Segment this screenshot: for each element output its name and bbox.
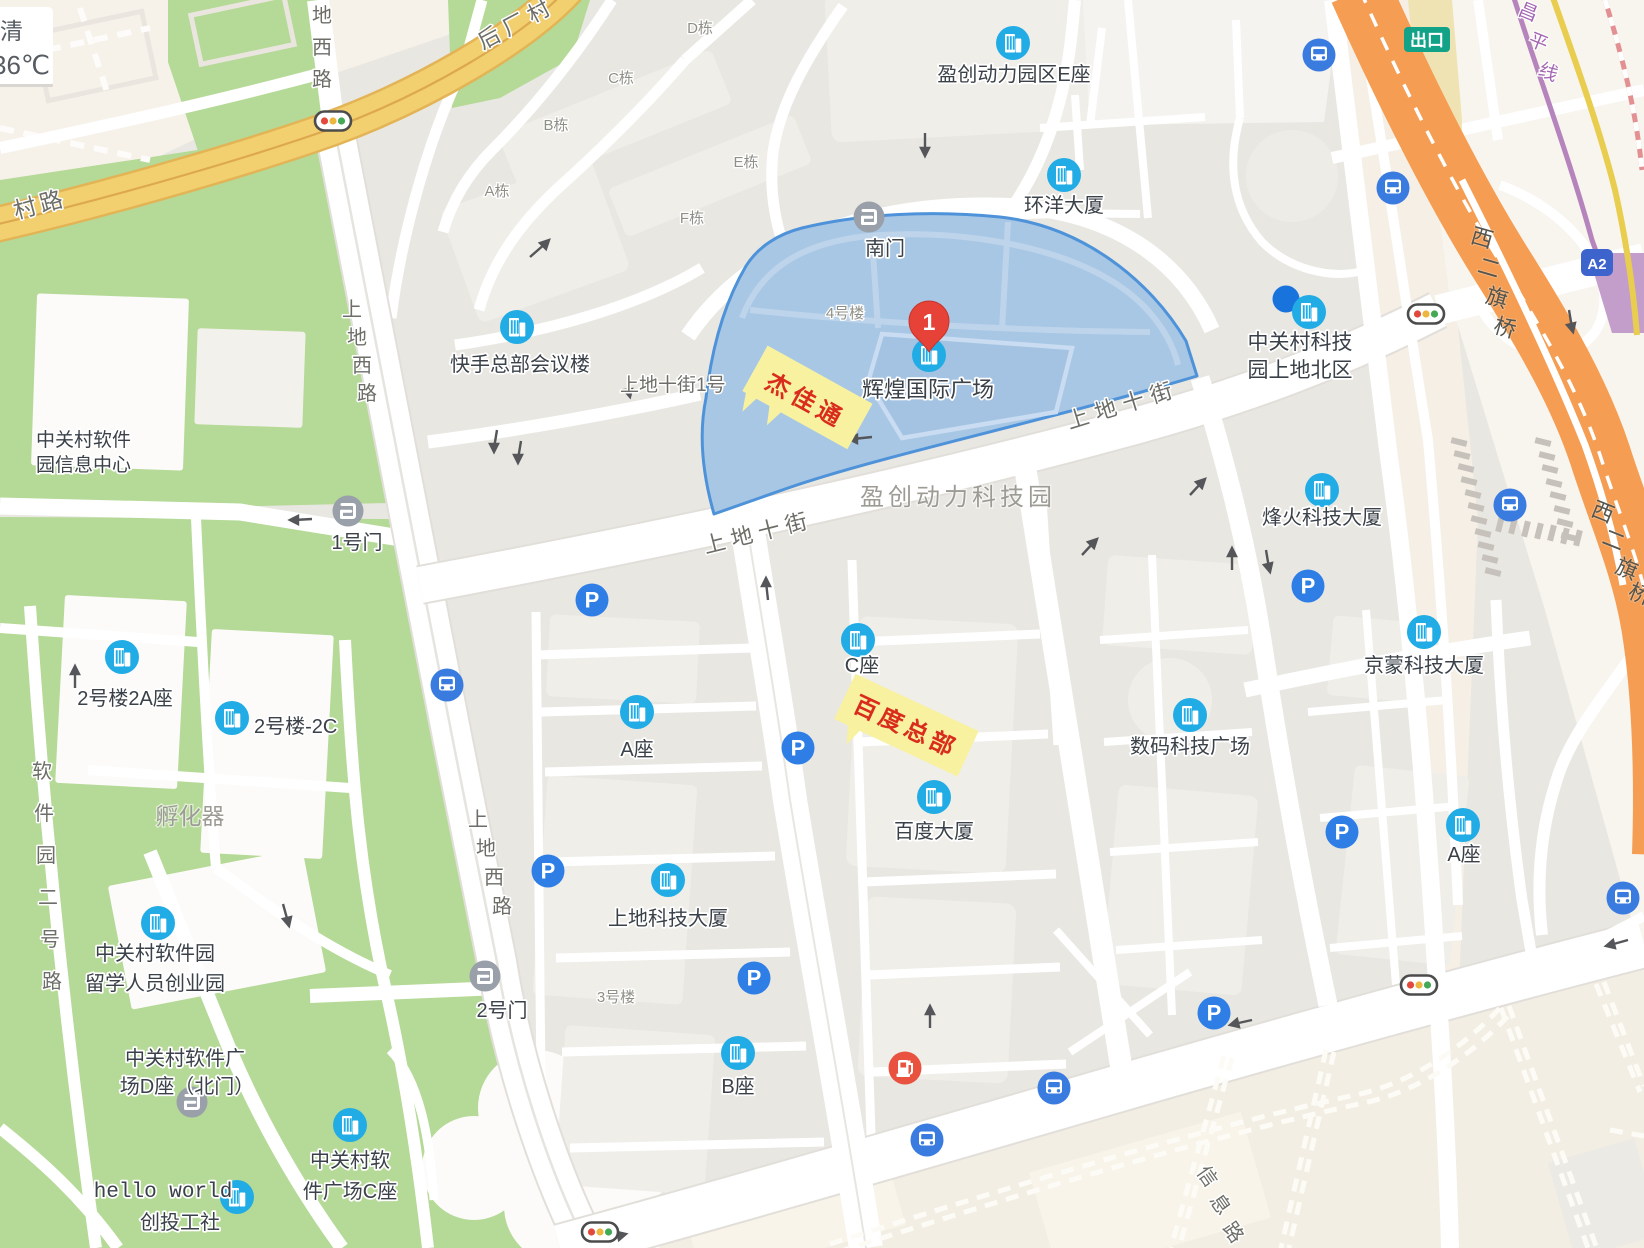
svg-text:D栋: D栋 [687,19,713,37]
svg-text:上: 上 [468,808,488,831]
svg-text:留学人员创业园: 留学人员创业园 [85,972,225,995]
svg-text:百度大厦: 百度大厦 [894,820,974,843]
svg-text:E栋: E栋 [733,153,758,171]
svg-text:西: 西 [312,37,332,59]
svg-text:南门: 南门 [865,237,905,260]
svg-text:孵化器: 孵化器 [156,803,225,829]
svg-text:C座: C座 [845,654,879,677]
svg-text:2号楼2A座: 2号楼2A座 [77,687,173,710]
svg-text:园信息中心: 园信息中心 [36,454,131,476]
svg-text:西: 西 [484,867,504,889]
svg-text:场D座（北门）: 场D座（北门） [120,1075,254,1098]
svg-text:A座: A座 [620,738,653,761]
svg-text:烽火科技大厦: 烽火科技大厦 [1262,506,1382,529]
svg-text:中关村科技: 中关村科技 [1248,331,1353,354]
svg-text:盈创动力科技园: 盈创动力科技园 [860,484,1056,511]
svg-text:辉煌国际广场: 辉煌国际广场 [862,377,994,402]
svg-text:环洋大厦: 环洋大厦 [1024,194,1104,217]
svg-text:路: 路 [357,382,377,405]
svg-text:号: 号 [40,929,60,951]
svg-text:园上地北区: 园上地北区 [1248,359,1353,382]
svg-text:数码科技广场: 数码科技广场 [1130,735,1250,758]
svg-text:出口: 出口 [1410,30,1444,50]
svg-text:A栋: A栋 [484,182,509,200]
svg-text:盈创动力园区E座: 盈创动力园区E座 [937,63,1090,86]
svg-text:B栋: B栋 [543,116,568,134]
svg-text:地: 地 [347,326,367,349]
svg-text:A2: A2 [1587,256,1606,273]
svg-text:hello world: hello world [94,1181,233,1204]
svg-text:上地科技大厦: 上地科技大厦 [608,907,728,930]
svg-text:2号门: 2号门 [476,999,527,1022]
svg-text:1号门: 1号门 [331,531,382,554]
svg-text:件广场C座: 件广场C座 [303,1180,397,1203]
svg-text:地: 地 [312,4,332,27]
svg-text:中关村软件广: 中关村软件广 [125,1047,245,1070]
svg-text:西: 西 [352,355,372,377]
svg-text:中关村软: 中关村软 [310,1149,390,1172]
svg-text:路: 路 [42,970,62,993]
svg-text:中关村软件园: 中关村软件园 [95,942,215,965]
svg-text:清: 清 [0,18,23,44]
svg-text:中关村软件: 中关村软件 [36,429,131,451]
svg-text:3号楼: 3号楼 [597,989,635,1006]
svg-text:2号楼-2C: 2号楼-2C [254,715,337,738]
svg-text:二: 二 [38,887,58,909]
svg-text:C栋: C栋 [608,69,634,87]
svg-text:软: 软 [32,760,52,783]
svg-text:B座: B座 [721,1075,754,1098]
svg-text:创投工社: 创投工社 [140,1211,220,1234]
svg-text:路: 路 [312,68,332,91]
svg-text:件: 件 [34,802,54,825]
svg-text:36℃: 36℃ [0,50,50,80]
svg-text:上: 上 [342,298,362,321]
svg-text:快手总部会议楼: 快手总部会议楼 [450,353,590,376]
svg-text:上地十街1号: 上地十街1号 [620,374,726,396]
svg-text:京蒙科技大厦: 京蒙科技大厦 [1364,654,1484,677]
svg-text:1: 1 [923,309,936,335]
svg-text:F栋: F栋 [680,209,704,227]
svg-text:4号楼: 4号楼 [826,305,864,322]
svg-text:路: 路 [492,895,512,918]
svg-text:地: 地 [476,837,496,860]
svg-text:园: 园 [36,845,56,867]
svg-text:A座: A座 [1447,843,1480,866]
